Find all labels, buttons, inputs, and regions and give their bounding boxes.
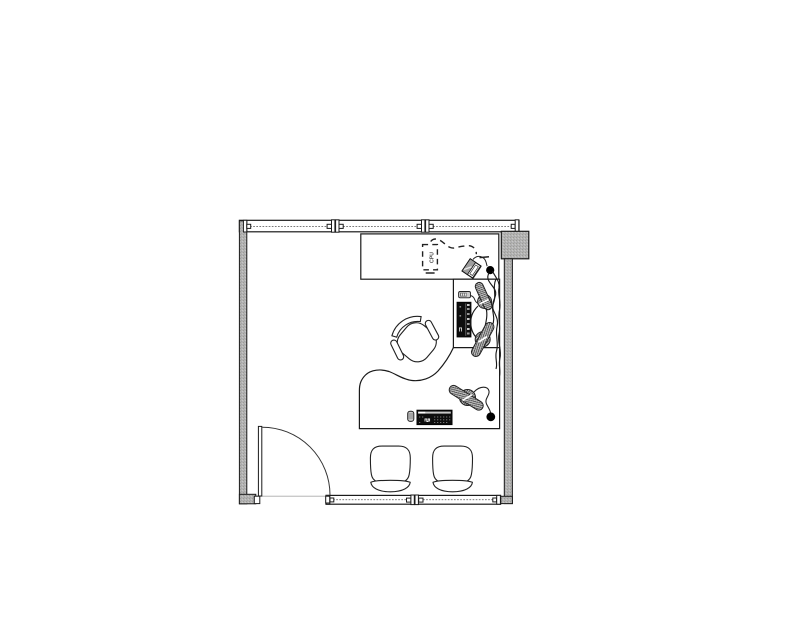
svg-text:CPU: CPU [429,252,435,263]
